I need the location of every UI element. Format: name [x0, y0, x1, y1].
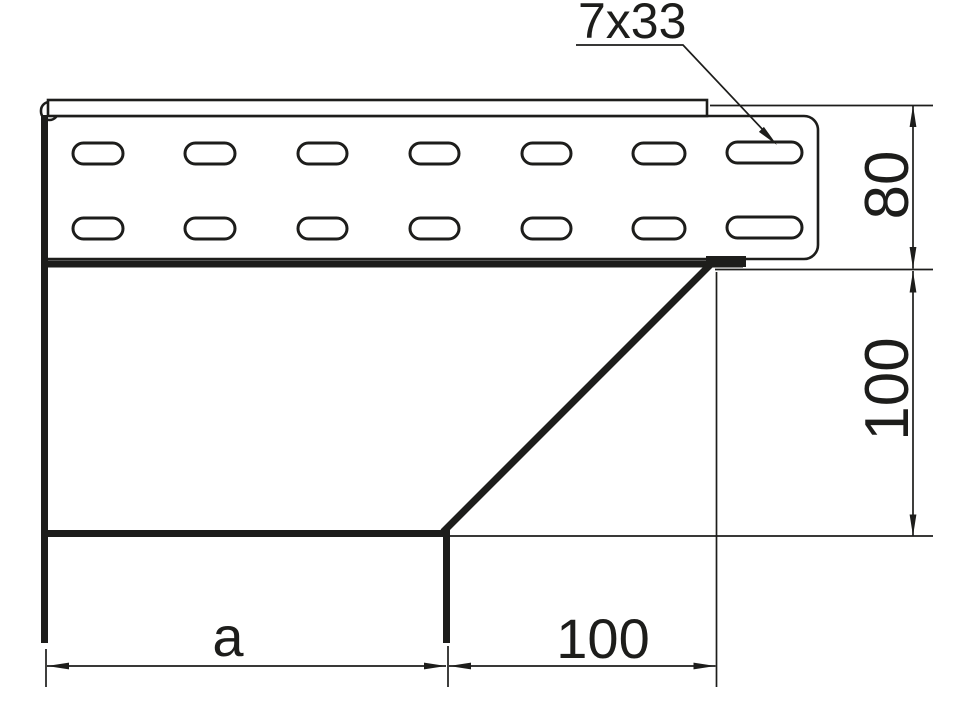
- dim-label-rail-height: 80: [853, 151, 922, 220]
- dimension-base-width: a: [47, 605, 446, 669]
- slot-hole: [73, 218, 123, 239]
- dimension-offset-width: 100: [449, 607, 716, 670]
- drawing-canvas: 80 100 a 100 7x33: [0, 0, 980, 714]
- technical-drawing: 80 100 a 100 7x33: [0, 0, 980, 714]
- profile-diagonal: [443, 263, 712, 532]
- dim-label-offset-width: 100: [556, 607, 649, 670]
- profile-corner-fill: [706, 256, 746, 267]
- slot-hole: [73, 143, 123, 164]
- slot-hole: [522, 143, 571, 164]
- dim-label-base-width: a: [212, 605, 244, 668]
- dimension-rail-height: 80: [853, 106, 922, 269]
- arrowhead-right-icon: [424, 663, 446, 670]
- rail-top-flange: [48, 100, 707, 116]
- slot-hole: [633, 143, 685, 164]
- slot-hole: [298, 218, 347, 239]
- arrowhead-left-icon: [449, 663, 471, 670]
- dimension-riser-height: 100: [853, 271, 922, 536]
- slot-hole: [185, 143, 235, 164]
- slot-hole: [298, 143, 347, 164]
- slot-hole: [522, 218, 571, 239]
- slot-hole: [410, 143, 459, 164]
- slot-hole: [633, 218, 685, 239]
- arrowhead-down-icon: [910, 247, 917, 269]
- arrowhead-up-icon: [910, 271, 917, 293]
- slot-hole-long: [727, 142, 802, 163]
- arrowhead-down-icon: [910, 515, 917, 537]
- arrowhead-right-icon: [694, 663, 716, 670]
- arrowhead-left-icon: [47, 663, 69, 670]
- dim-label-riser-height: 100: [853, 337, 922, 440]
- slot-size-label: 7x33: [578, 0, 686, 49]
- slot-hole: [410, 218, 459, 239]
- slot-hole: [185, 218, 235, 239]
- slot-hole-long: [727, 217, 802, 238]
- arrowhead-up-icon: [910, 106, 917, 128]
